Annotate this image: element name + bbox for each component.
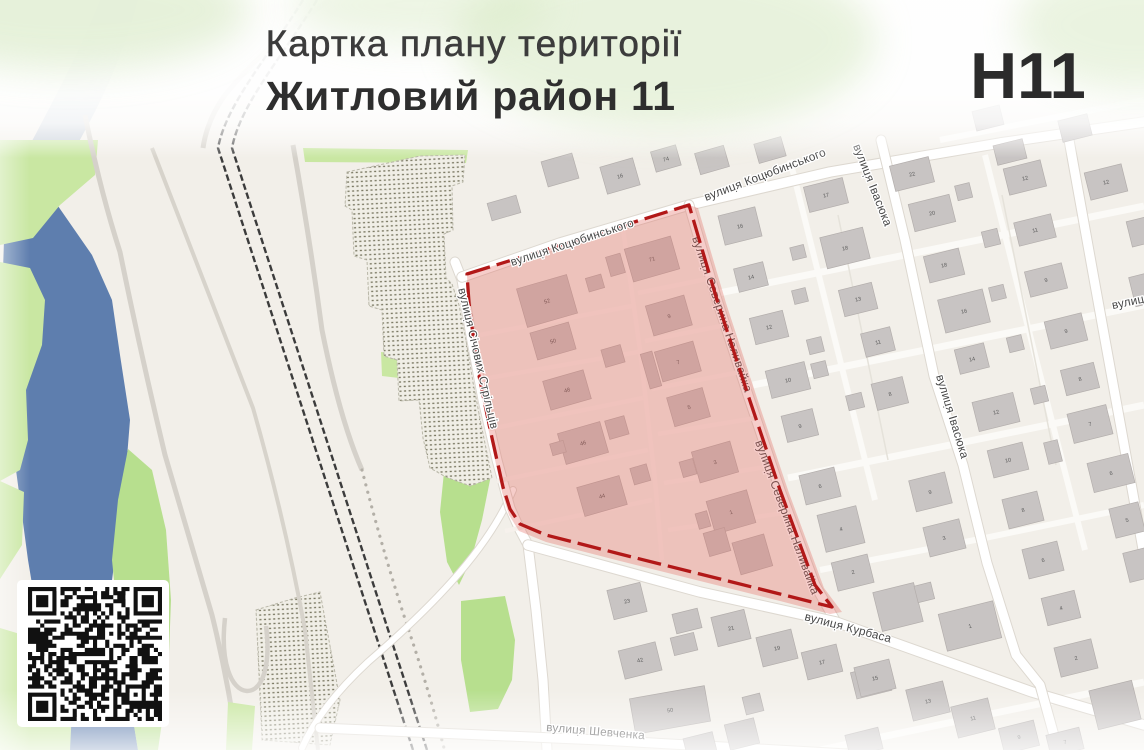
svg-text:Житловий район 11: Житловий район 11 — [265, 73, 676, 119]
svg-text:Н11: Н11 — [970, 39, 1086, 112]
svg-text:Картка плану території: Картка плану території — [266, 23, 683, 64]
